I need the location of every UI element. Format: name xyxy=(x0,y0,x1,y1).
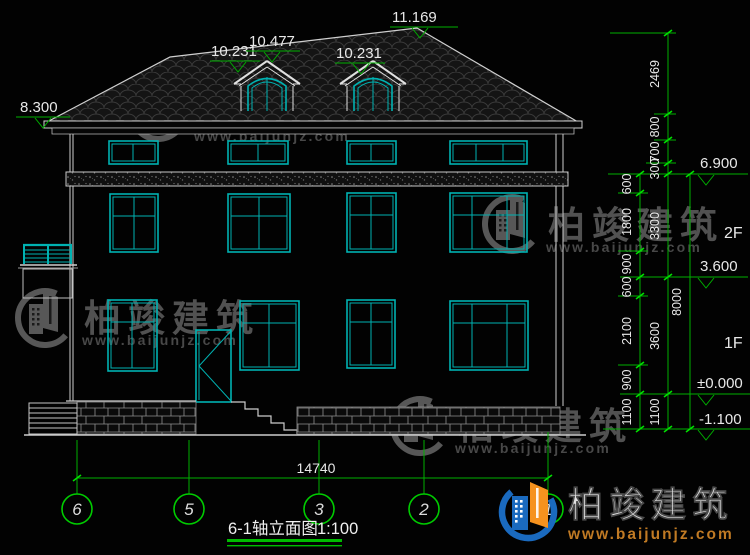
watermark-url: www.baijunjz.com xyxy=(545,239,702,255)
caption-text: 6-1轴立面图 xyxy=(228,519,318,538)
axis-bubble-5: 5 xyxy=(184,500,194,519)
level-text: 8.300 xyxy=(20,99,58,116)
level-text: 10.477 xyxy=(249,33,295,50)
dim-label: 1800 xyxy=(620,208,634,236)
dim-label: 3600 xyxy=(648,322,662,350)
dim-label: 1100 xyxy=(648,399,662,426)
dim-label: 900 xyxy=(620,254,634,275)
dim-label: 2469 xyxy=(648,60,662,88)
level-text: 10.231 xyxy=(336,45,382,62)
floor-label-1f: 1F xyxy=(724,335,743,352)
axis-bubble-3: 3 xyxy=(314,500,324,519)
dim-label: 2100 xyxy=(620,317,634,345)
dim-label: 300 xyxy=(648,159,662,180)
title-underline-thick xyxy=(227,539,342,542)
title-underline-thin xyxy=(227,545,342,546)
axis-bubble-2: 2 xyxy=(418,500,429,519)
level-text: 3.600 xyxy=(700,258,738,275)
dim-label: 800 xyxy=(648,117,662,138)
axis-bubble-6: 6 xyxy=(72,500,82,519)
dim-label: 600 xyxy=(620,174,634,195)
stone-plinth-right xyxy=(297,407,560,434)
logo-url: www.baijunjz.com xyxy=(567,526,734,543)
total-width-dim: 14740 xyxy=(297,460,336,476)
logo-name: 柏竣建筑 xyxy=(568,485,734,525)
stone-plinth-left xyxy=(77,402,196,434)
level-text: -1.100 xyxy=(699,411,742,428)
dim-label: 600 xyxy=(620,277,634,298)
caption-scale: 1:100 xyxy=(317,520,358,538)
level-text: 6.900 xyxy=(700,155,738,172)
dim-label: 900 xyxy=(620,370,634,391)
level-text: ±0.000 xyxy=(697,375,743,392)
elevation-svg: 柏竣建筑 www.baijunjz.com 柏竣建筑 www.baijunjz.… xyxy=(0,0,750,555)
total-height-dim: 8000 xyxy=(670,288,684,316)
dim-label: 1100 xyxy=(620,399,634,426)
level-text: 11.169 xyxy=(392,9,437,26)
cad-elevation-drawing: 柏竣建筑 www.baijunjz.com 柏竣建筑 www.baijunjz.… xyxy=(0,0,750,555)
watermark-url: www.baijunjz.com xyxy=(454,440,611,456)
dim-label: 3300 xyxy=(648,212,662,240)
floor-slab-band xyxy=(66,172,568,186)
watermark-url: www.baijunjz.com xyxy=(81,332,238,348)
floor-label-2f: 2F xyxy=(724,225,743,242)
